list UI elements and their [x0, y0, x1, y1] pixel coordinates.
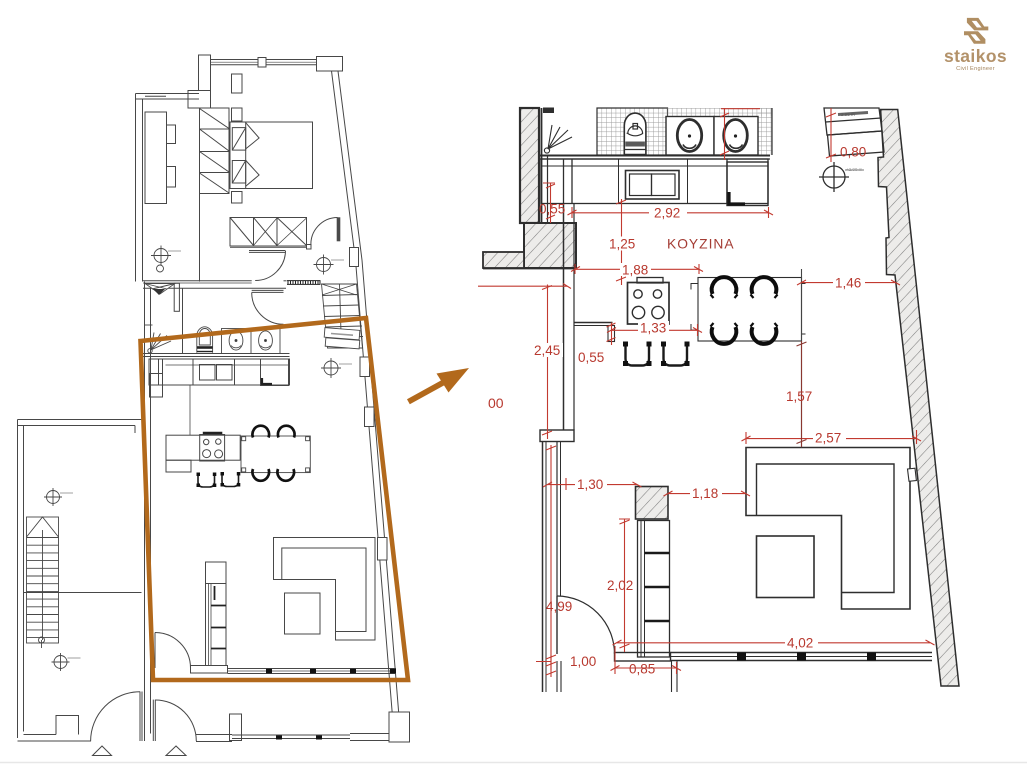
- svg-text:0,85: 0,85: [629, 662, 655, 677]
- svg-text:2,92: 2,92: [654, 206, 680, 221]
- svg-text:1,46: 1,46: [835, 276, 861, 291]
- svg-text:00: 00: [488, 395, 504, 411]
- svg-text:1,18: 1,18: [692, 486, 718, 501]
- svg-text:2,45: 2,45: [534, 343, 560, 358]
- svg-text:0,80: 0,80: [840, 145, 866, 160]
- svg-text:1,25: 1,25: [609, 237, 635, 252]
- svg-text:0,55: 0,55: [539, 202, 565, 217]
- svg-text:1,88: 1,88: [622, 263, 648, 278]
- svg-text:4,02: 4,02: [787, 636, 813, 651]
- svg-text:KOYZINA: KOYZINA: [667, 237, 735, 252]
- svg-text:2,57: 2,57: [815, 431, 841, 446]
- svg-text:4,99: 4,99: [546, 599, 572, 614]
- svg-text:+2.00 m: +2.00 m: [846, 167, 863, 172]
- svg-text:1,00: 1,00: [570, 654, 596, 669]
- svg-text:2,02: 2,02: [607, 578, 633, 593]
- svg-text:1,30: 1,30: [577, 477, 603, 492]
- svg-text:0,55: 0,55: [578, 350, 604, 365]
- svg-text:Civil Engineer: Civil Engineer: [956, 66, 995, 72]
- svg-text:1,33: 1,33: [640, 321, 666, 336]
- svg-text:2.95 m: 2.95 m: [841, 112, 855, 117]
- svg-text:staikos: staikos: [944, 46, 1007, 66]
- svg-text:1,57: 1,57: [786, 389, 812, 404]
